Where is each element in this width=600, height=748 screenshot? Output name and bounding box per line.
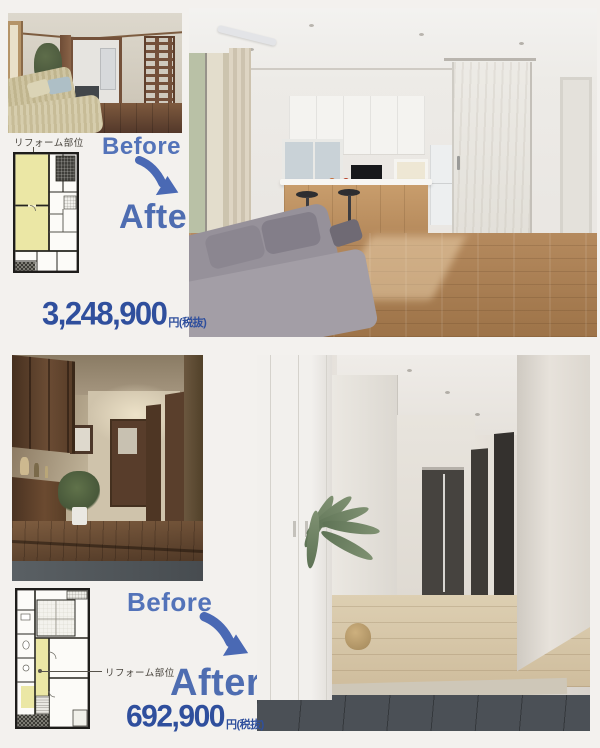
genkan-tile-floor: [257, 695, 590, 731]
hallway-door: [471, 448, 488, 617]
floor-plan-reform-area-1: [13, 152, 79, 273]
after-photo-ldk: [189, 8, 597, 337]
leader-line: [41, 671, 102, 672]
hallway-end-door: [422, 467, 464, 596]
refrigerator: [100, 48, 116, 90]
door-track: [444, 58, 536, 61]
upper-cabinet: [12, 355, 75, 454]
closet-handle: [293, 521, 296, 537]
price-tax-suffix: 円(税抜): [168, 314, 206, 333]
floor-plan-reform-area-2: [15, 588, 90, 729]
price-tax-suffix: 円(税抜): [226, 716, 264, 735]
sliding-door: [452, 62, 532, 258]
hallway-end-door: [110, 419, 148, 507]
hallway-door: [146, 404, 161, 524]
before-photo-hallway: [12, 355, 203, 581]
renovation-price: 3,248,900 円(税抜): [42, 297, 206, 333]
before-photo-living-room: [8, 13, 182, 133]
reform-area-label: リフォーム部位: [14, 135, 84, 149]
price-amount: 3,248,900: [42, 295, 166, 333]
glass-panel-door: [144, 36, 175, 108]
door-handle: [457, 156, 460, 170]
decorative-bottles: [20, 457, 29, 475]
downlights: [309, 24, 314, 27]
plant-pot: [345, 623, 371, 650]
reform-area-label: リフォーム部位: [105, 665, 175, 679]
renovation-price: 692,900 円(税抜): [126, 701, 264, 735]
genkan-tile-floor: [12, 561, 203, 581]
price-amount: 692,900: [126, 699, 224, 735]
downlights: [407, 369, 412, 372]
leader-dot: [38, 669, 42, 673]
curved-arrow-down-right-icon: [192, 612, 252, 668]
renovation-flyer-page: リフォーム部位: [0, 0, 600, 748]
plant-pot: [72, 507, 87, 525]
